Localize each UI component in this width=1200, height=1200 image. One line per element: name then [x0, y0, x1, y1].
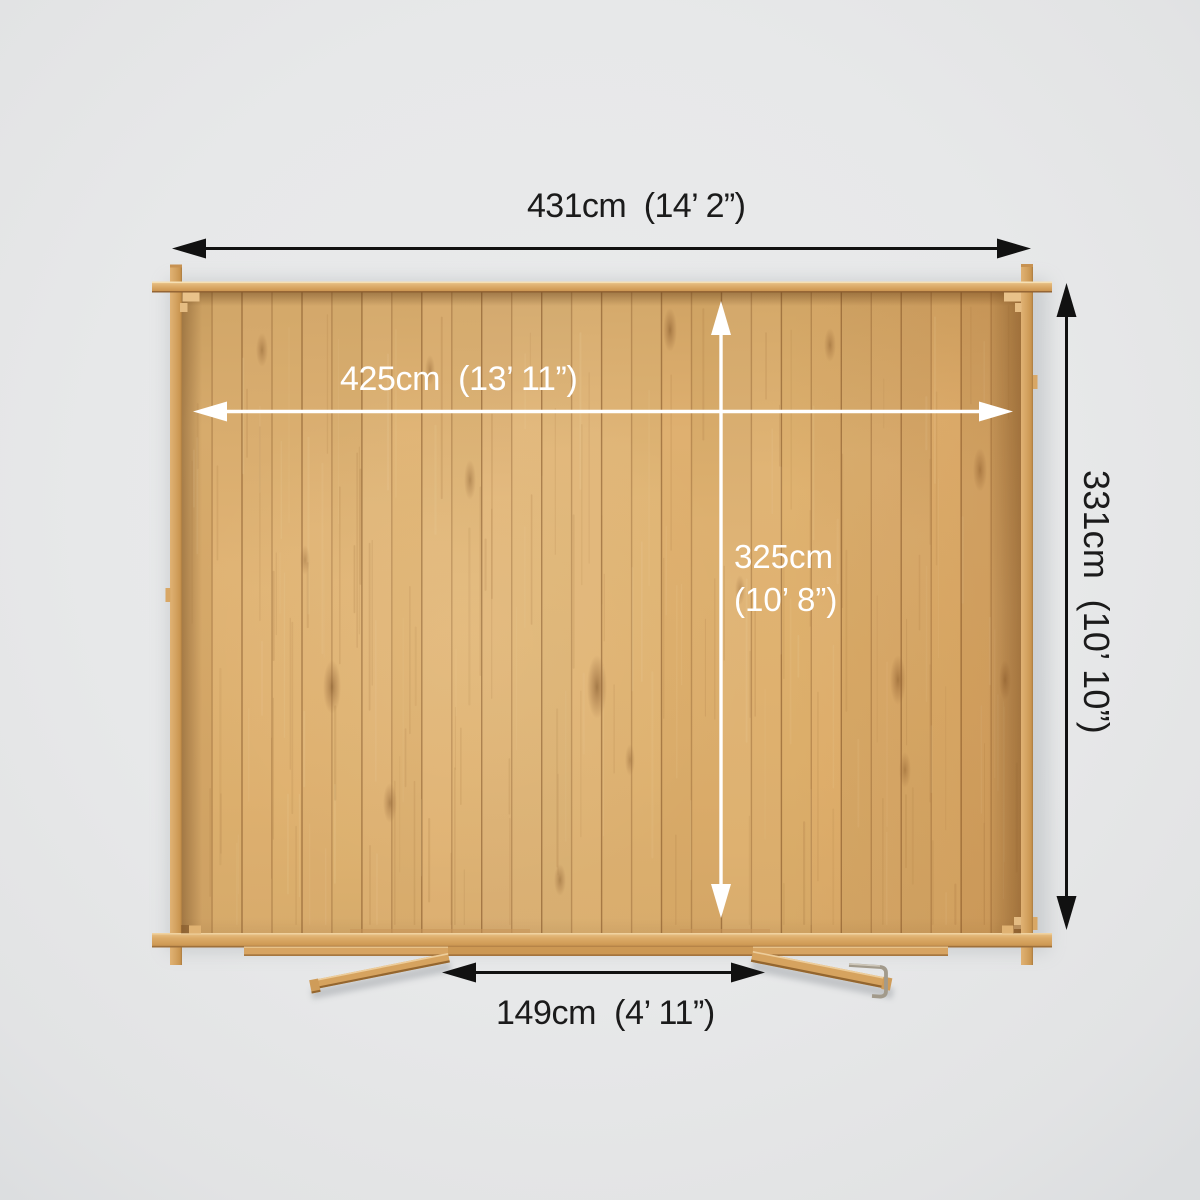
svg-text:425cm (13’ 11”): 425cm (13’ 11”)	[340, 360, 577, 398]
svg-text:325cm: 325cm	[734, 538, 833, 575]
svg-text:431cm (14’ 2”): 431cm (14’ 2”)	[527, 187, 745, 225]
svg-text:(10’ 8”): (10’ 8”)	[734, 581, 837, 618]
svg-text:331cm (10’ 10”): 331cm (10’ 10”)	[1076, 470, 1117, 734]
svg-text:149cm (4’ 11”): 149cm (4’ 11”)	[496, 994, 715, 1032]
